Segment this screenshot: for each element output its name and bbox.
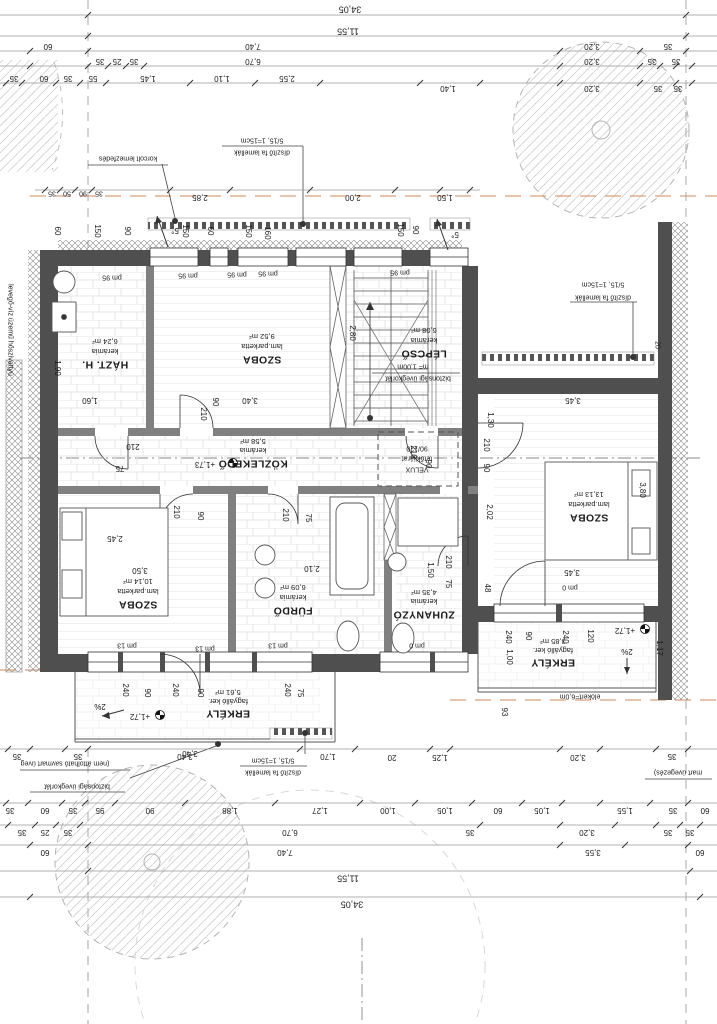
room-name: FÜRDŐ <box>273 605 312 616</box>
dim-label: 2,02 <box>485 504 493 520</box>
room-area: 4,35 m² <box>411 588 436 596</box>
dim-label: 35 <box>130 57 139 65</box>
dim-label: 90 <box>411 226 419 235</box>
dim-label: 1,50 <box>437 193 453 201</box>
note-glass-rail: biztonsági üvegkorlát <box>44 783 110 790</box>
dim-label: 1,90 <box>53 360 61 376</box>
note-lamella-spec: 5/15, 1=15cm <box>582 281 625 288</box>
dim-label: 3,20 <box>584 42 600 50</box>
dim-label: 60 <box>41 806 50 814</box>
door-tag: 210 <box>409 445 417 458</box>
dim-label: 1,45 <box>140 74 156 82</box>
dim-label: 55 <box>89 74 98 82</box>
floor-plan-sheet: 34,05 11,55 60 7,40 3,20 35 35 25 35 6,7… <box>0 0 717 1024</box>
dim-label: 60 <box>701 806 710 814</box>
dim-label: 1,88 <box>222 806 238 814</box>
roof-slope-label: 5° <box>451 230 459 238</box>
parapet-tag: pm 95 <box>102 274 121 281</box>
window-tag: 240 <box>283 683 291 696</box>
parapet-tag: pm 95 <box>258 270 277 277</box>
note-lamella: díszítő fa lamellák <box>245 769 301 776</box>
door-tag: 1,50 <box>426 562 434 578</box>
dim-label: 25 <box>113 57 122 65</box>
tree-canopy-top-right <box>513 42 689 218</box>
level-mark: +1,72 <box>615 626 635 634</box>
dim-label: 35 <box>674 84 683 92</box>
room-area: 6,08 m² <box>411 326 436 334</box>
dim-label: 35 <box>686 828 695 836</box>
dim-label: 34,05 <box>341 900 364 909</box>
dim-label: 1,27 <box>312 806 328 814</box>
dim-label: 150 <box>181 224 189 237</box>
roof-slope-label: 5° <box>171 226 179 234</box>
dim-label: 1,40 <box>440 84 456 92</box>
dim-label: 7,40 <box>277 848 293 856</box>
dim-label: 90 <box>79 190 87 197</box>
dim-label: 93 <box>500 708 508 717</box>
dim-label: 35 <box>18 828 27 836</box>
dim-label: 50 <box>63 190 71 197</box>
dim-label: 6,70 <box>245 57 261 65</box>
dim-label: 2,85 <box>192 193 208 201</box>
dim-label: 6,70 <box>282 828 298 836</box>
dim-label: 35 <box>664 42 673 50</box>
dim-label: 35 <box>664 828 673 836</box>
room-finish: lam.parketta <box>117 587 158 595</box>
note-heatpump: levegő-víz üzemű hőszivattyú <box>7 284 14 376</box>
window-tag: 240 <box>561 630 569 643</box>
room-area: 13,13 m² <box>574 490 604 498</box>
dim-label: 150 <box>93 224 101 237</box>
tree-canopy-bottom-left <box>55 765 485 1024</box>
dim-label: 60 <box>44 42 53 50</box>
dim-label: 95 <box>96 806 105 814</box>
dim-label: 3,20 <box>570 753 586 761</box>
room-area: 10,14 m² <box>123 577 153 585</box>
balcony-slope-label: 2% <box>621 647 633 655</box>
room-area: 6,09 m² <box>280 583 305 591</box>
parapet-tag: pm 13 <box>117 642 136 649</box>
door-tag: 210 <box>172 505 180 518</box>
dim-label: 160 <box>263 226 271 239</box>
window-tag: 240 <box>504 630 512 643</box>
balcony-slope-label: 2% <box>94 702 106 710</box>
dim-label: 20 <box>388 753 397 761</box>
room-name: ZUHANYZÓ <box>393 609 455 620</box>
note-korcolt: korcolt lemezfedés <box>99 155 157 162</box>
door-tag: 90 <box>482 464 490 473</box>
dim-label: 11,55 <box>337 27 359 36</box>
dim-label: 48 <box>483 584 491 593</box>
dim-label: 2,45 <box>107 534 123 542</box>
room-area: 9,52 m² <box>249 332 274 340</box>
door-tag: 75 <box>116 464 125 472</box>
door-tag: 75 <box>304 514 312 523</box>
window-tag: 90 <box>196 689 204 698</box>
door-tag: 75 <box>444 580 452 589</box>
dim-label: 25 <box>41 828 50 836</box>
dim-label: 60 <box>40 74 49 82</box>
dim-label: 35 <box>69 806 78 814</box>
dim-label: 35 <box>95 190 103 197</box>
level-mark: +1,73 <box>195 460 215 468</box>
dim-label: 35 <box>6 806 15 814</box>
door-tag: 210 <box>281 508 289 521</box>
dim-label: 1,70 <box>320 752 336 760</box>
level-mark: +1,72 <box>130 712 150 720</box>
parapet-tag: pm 13 <box>268 642 287 649</box>
room-name: SZOBA <box>570 512 609 523</box>
dim-label: 35 <box>10 74 19 82</box>
dim-label: 2,55 <box>279 74 295 82</box>
note-lamella-spec: 5/15, 1=15cm <box>241 137 284 144</box>
door-tag: 90 <box>196 512 204 521</box>
dim-label: 35 <box>668 752 677 760</box>
dim-label: 60 <box>53 227 61 236</box>
door-tag: 210 <box>482 438 490 451</box>
window-tag: 240 <box>171 683 179 696</box>
room-name: LÉPCSŐ <box>401 348 447 359</box>
room-area: 5,58 m² <box>240 437 265 445</box>
room-area: 6,24 m² <box>92 337 117 345</box>
dim-label: 90 <box>123 227 131 236</box>
dim-label: 1,60 <box>82 396 98 404</box>
room-name: ERKÉLY <box>531 657 575 668</box>
note-lamella: díszítő fa lamellák <box>234 149 290 156</box>
room-finish: fagyálló ker. <box>208 697 248 705</box>
dim-label: 35 <box>64 74 73 82</box>
dim-label: 7,40 <box>245 42 261 50</box>
dim-label: 20 <box>654 341 661 349</box>
door-tag: 90 <box>424 460 432 469</box>
dim-label: 1,05 <box>437 806 453 814</box>
room-finish: lam.parketta <box>241 342 282 350</box>
note-front-garden: elökert=6,0m <box>560 693 601 700</box>
dim-label: 3,40 <box>177 752 193 760</box>
parapet-tag: pm 0 <box>562 584 578 591</box>
dim-label: 3,40 <box>242 396 258 404</box>
dim-label: 35 <box>648 57 657 65</box>
dim-label: 60 <box>206 227 214 236</box>
parapet-tag: pm 0 <box>409 642 425 649</box>
window-tag: 90 <box>143 689 151 698</box>
parapet-tag: pm 95 <box>178 272 197 279</box>
dim-label: 35 <box>48 190 56 197</box>
dim-label: 90 <box>146 806 155 814</box>
window-tag: 120 <box>586 629 594 642</box>
dim-label: 3,20 <box>584 57 600 65</box>
dim-label: 1,25 <box>432 753 448 761</box>
room-name: SZOBA <box>243 354 282 365</box>
door-tag: 210 <box>126 442 139 450</box>
dim-label: 35 <box>64 828 73 836</box>
room-finish: kerámia <box>411 336 438 344</box>
note-lamella-spec: 5/15, 1=15cm <box>252 757 295 764</box>
dim-label: 1,17 <box>655 640 663 656</box>
note-glass-type-fragment: mart üvegezés) <box>654 769 702 776</box>
room-finish: kerámia <box>92 347 119 355</box>
room-name: ERKÉLY <box>206 708 250 719</box>
dim-label: 2,00 <box>345 193 361 201</box>
dim-label: 60 <box>41 848 50 856</box>
dim-label: 1,55 <box>617 806 633 814</box>
room-name: SZOBA <box>119 599 158 610</box>
dim-label: 35 <box>96 57 105 65</box>
note-glass-rail-height: m= 1,00m <box>397 363 428 370</box>
dim-label: 2,10 <box>304 564 320 572</box>
room-finish: kerámia <box>240 446 267 454</box>
note-glass-type: (nem áttolható savmart üveg <box>21 760 110 767</box>
dim-label: 3,20 <box>584 84 600 92</box>
dim-label: 35 <box>672 57 681 65</box>
room-finish: kerámia <box>280 593 307 601</box>
dim-label: 60 <box>696 848 705 856</box>
dim-label: 3,55 <box>585 848 601 856</box>
dim-label: 150 <box>244 224 252 237</box>
dim-label: 3,45 <box>564 568 580 576</box>
dim-label: 35 <box>654 84 663 92</box>
dim-label: 1,00 <box>380 806 396 814</box>
window-tag: 1,00 <box>505 649 513 665</box>
door-tag: 210 <box>199 407 207 420</box>
door-tag: 210 <box>444 555 452 568</box>
window-tag: 240 <box>121 683 129 696</box>
window-tag: 90 <box>524 632 532 641</box>
parapet-tag: pm 13 <box>195 645 214 652</box>
dim-label: 35 <box>669 806 678 814</box>
dim-label: 11,55 <box>337 874 359 883</box>
room-finish: fagyálló ker. <box>533 646 573 654</box>
parapet-tag: pm 95 <box>227 271 246 278</box>
dim-label: 1,10 <box>214 74 230 82</box>
dim-label: 35 <box>466 828 475 836</box>
room-name: HÁZT. H. <box>82 359 128 370</box>
door-tag: 90 <box>211 398 219 407</box>
dim-label: 3,50 <box>132 566 148 574</box>
note-glass-rail: biztonsági üvegkorlát <box>385 375 451 382</box>
dim-label: 3,45 <box>565 396 581 404</box>
dim-label: 34,05 <box>339 5 362 14</box>
dim-label: 3,20 <box>579 828 595 836</box>
room-finish: lam.parketta <box>568 500 609 508</box>
dim-label: 1,30 <box>486 412 494 428</box>
dim-label: 150 <box>396 223 404 236</box>
dim-label: 2,80 <box>348 325 356 341</box>
parapet-tag: pm 95 <box>390 269 409 276</box>
note-lamella: díszítő fa lamellák <box>575 294 631 301</box>
dim-label: 3,80 <box>638 482 646 498</box>
room-area: 5,61 m² <box>215 688 240 696</box>
room-finish: kerámia <box>411 597 438 605</box>
dim-label: 1,05 <box>534 806 550 814</box>
room-name: KÖZLEKEDŐ <box>218 458 288 469</box>
dim-label: 60 <box>494 806 503 814</box>
window-tag: 75 <box>296 689 304 698</box>
